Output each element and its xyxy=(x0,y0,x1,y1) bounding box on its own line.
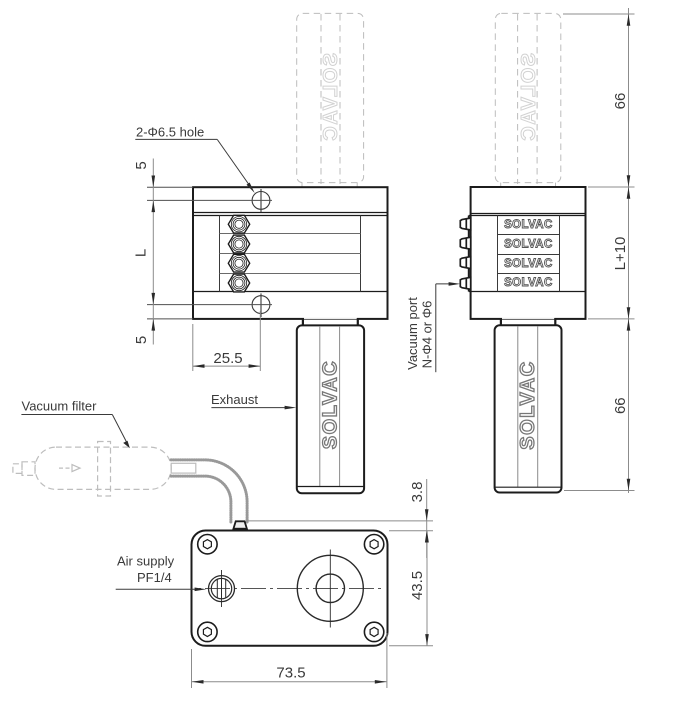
svg-text:5: 5 xyxy=(133,161,150,169)
svg-text:L+10: L+10 xyxy=(612,237,629,271)
svg-text:PF1/4: PF1/4 xyxy=(137,570,172,585)
svg-text:Exhaust: Exhaust xyxy=(211,392,258,407)
svg-text:SOLVAC: SOLVAC xyxy=(504,219,553,231)
svg-text:L: L xyxy=(133,249,150,257)
svg-text:SOLVAC: SOLVAC xyxy=(320,360,342,449)
svg-text:43.5: 43.5 xyxy=(409,571,426,600)
svg-text:5: 5 xyxy=(133,336,150,344)
svg-text:SOLVAC: SOLVAC xyxy=(320,53,342,142)
svg-text:3.8: 3.8 xyxy=(409,482,426,503)
svg-text:73.5: 73.5 xyxy=(276,665,305,682)
svg-text:Vacuum port: Vacuum port xyxy=(405,297,420,370)
svg-text:N-Φ4 or Φ6: N-Φ4 or Φ6 xyxy=(420,301,435,369)
svg-text:SOLVAC: SOLVAC xyxy=(504,239,553,251)
svg-text:SOLVAC: SOLVAC xyxy=(517,360,539,449)
svg-text:SOLVAC: SOLVAC xyxy=(504,258,553,270)
svg-text:Vacuum filter: Vacuum filter xyxy=(22,399,98,414)
svg-text:SOLVAC: SOLVAC xyxy=(518,53,540,142)
svg-text:2-Φ6.5 hole: 2-Φ6.5 hole xyxy=(136,124,204,139)
svg-text:66: 66 xyxy=(612,93,629,110)
svg-text:Air supply: Air supply xyxy=(117,554,175,569)
svg-text:SOLVAC: SOLVAC xyxy=(504,277,553,289)
svg-text:66: 66 xyxy=(612,397,629,414)
svg-text:25.5: 25.5 xyxy=(213,350,242,367)
